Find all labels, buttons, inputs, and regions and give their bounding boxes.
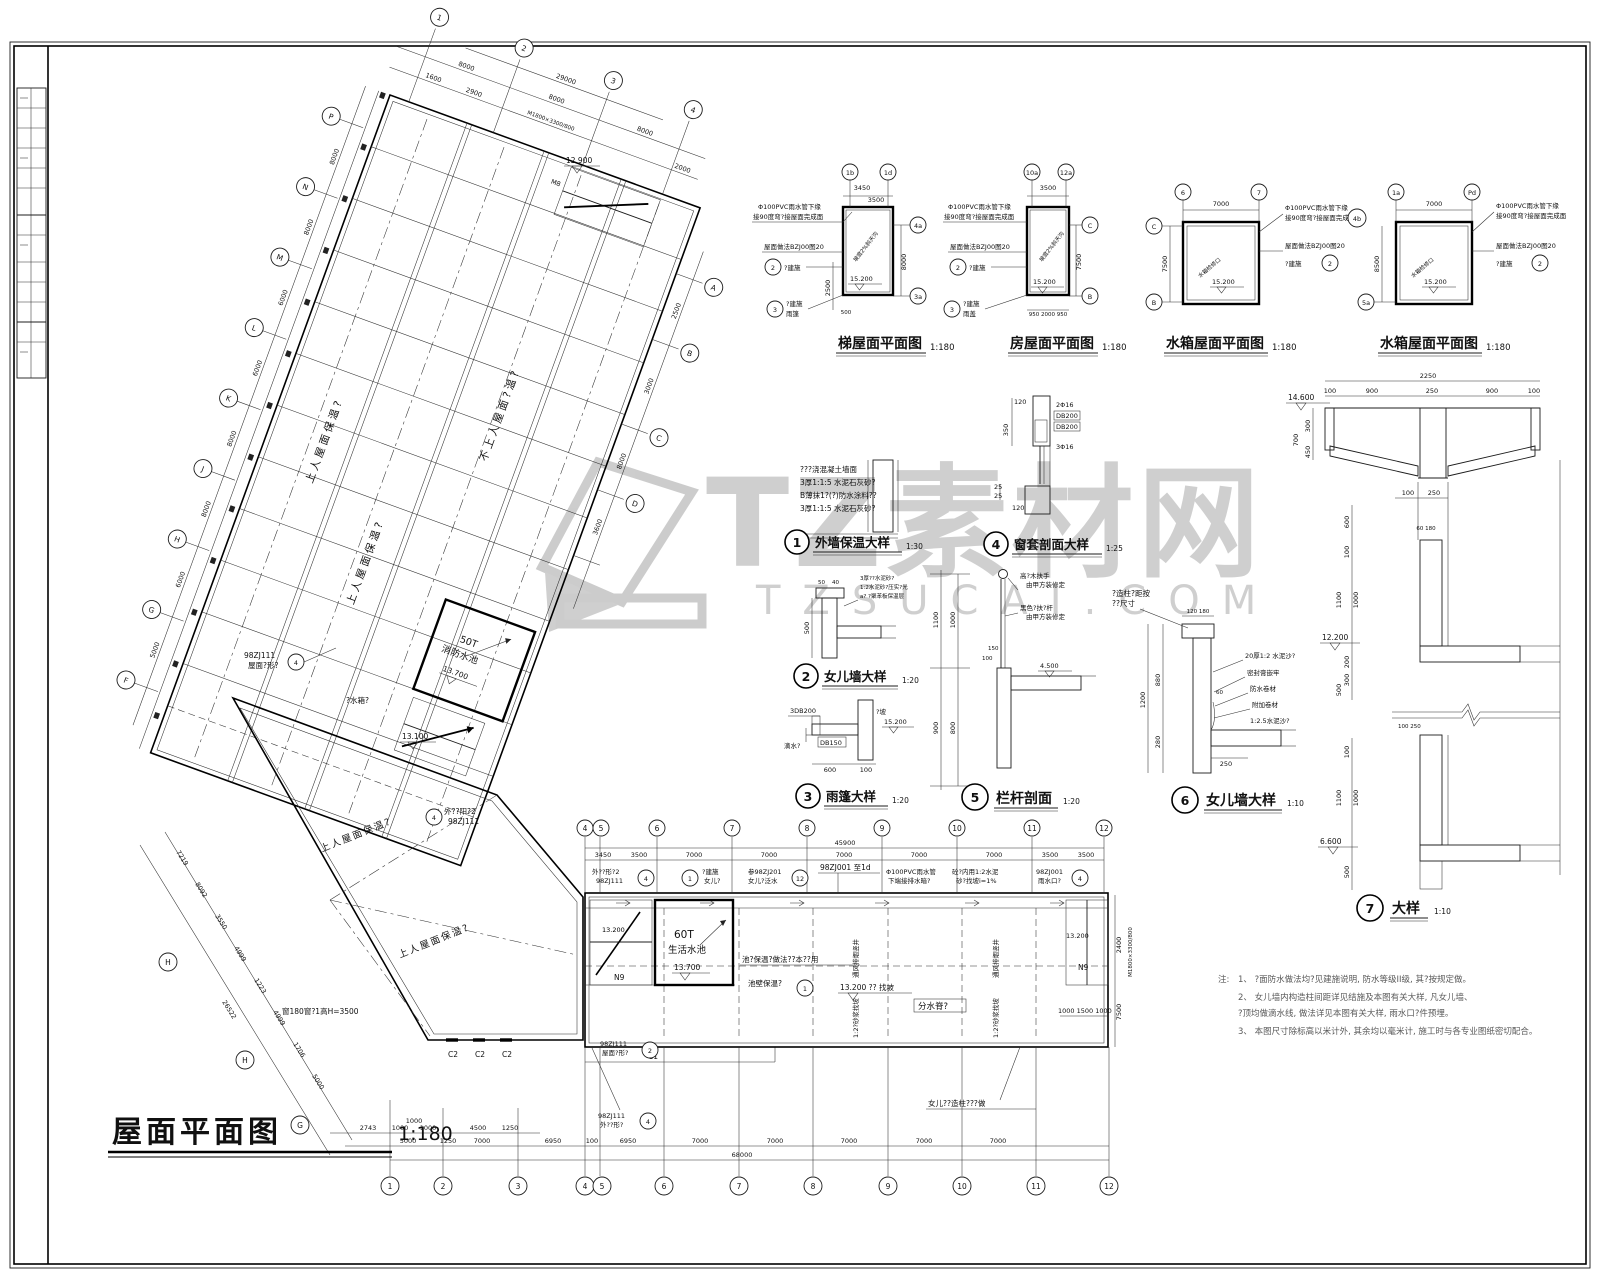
dim-text: 3600	[591, 518, 604, 536]
dim-text: 6000	[277, 289, 290, 307]
spec-text: 2Φ16	[1056, 401, 1074, 409]
notes-line: ?顶均做滴水线, 做法详见本图有关大样, 雨水口?件预埋。	[1238, 1008, 1453, 1019]
svg-text:3: 3	[773, 306, 777, 314]
level-text: 14.600	[1288, 393, 1314, 402]
grid-bubble: 1b	[846, 169, 854, 177]
spec-text: DB150	[820, 739, 842, 747]
dim-text: 3500	[1078, 851, 1095, 859]
dim-text: 1200	[1139, 692, 1147, 709]
spec-text: 高?木扶手	[1020, 571, 1050, 580]
plan-title: 水箱屋面平面图	[1166, 335, 1264, 352]
leader-text: Φ100PVC雨水管下缘	[1496, 201, 1559, 210]
level-text: 4.500	[1040, 662, 1059, 670]
dim-text: 1000	[949, 612, 957, 629]
callout-text: 砼?内用1:2水泥	[952, 867, 999, 876]
leader-text: 接90度弯?接屋面完成面	[753, 212, 824, 221]
dim-text: 7000	[686, 851, 703, 859]
leader-text: ?建施	[963, 299, 980, 308]
svg-text:4: 4	[294, 659, 298, 667]
detail-title: 雨篷大样	[826, 789, 877, 804]
dim-text: 68000	[732, 1151, 753, 1159]
plan-watertank-roof-1: 6 7 7000 C B 7500 水箱检修口 15.200 Φ100PVC雨水…	[1146, 184, 1366, 356]
grid-bubble: 11	[1027, 824, 1037, 833]
dim-text: 8000	[900, 254, 908, 271]
detail-title: 栏杆剖面	[996, 790, 1052, 807]
dim-text: 7500	[1075, 254, 1083, 271]
level-text: 15.200	[850, 275, 873, 283]
dim-text: 8000	[328, 148, 341, 166]
callout-text: 女儿??造柱???做	[928, 1098, 986, 1108]
dim-text: 7000	[474, 1137, 491, 1145]
stair-left: 13.200 N9	[590, 900, 652, 985]
dim-text: 100	[586, 1137, 598, 1145]
detail-scale: 1:10	[1287, 799, 1304, 808]
detail-3-canopy: 3DB200 DB150 滴水? ?坡 15.200 600 100 3 雨篷大…	[784, 700, 914, 809]
dim-text: 2900	[465, 86, 483, 99]
level-text: 13.200	[602, 926, 625, 934]
notes-line: 2、 女儿墙内构造柱间距详见结施及本图有关大样, 凡女儿墙、	[1238, 992, 1473, 1003]
slope-label: 水箱检修口	[1196, 256, 1222, 280]
angled-annotations: 12.900 13.100 98ZJ111 屋面?形? 4 ?水箱? 外??阳?…	[244, 156, 600, 826]
spec-text: a? ?聚苯板保温层	[860, 592, 904, 600]
svg-text:2: 2	[771, 264, 775, 272]
dim-text: 5000	[310, 1073, 326, 1091]
roof-area-label: 上人屋面保温?	[397, 921, 472, 961]
grid-bubble: 7	[730, 824, 735, 833]
detail-scale: 1:20	[892, 796, 909, 805]
dim-text: 120 180	[1187, 609, 1210, 615]
dim-text: 6950	[545, 1137, 562, 1145]
level-text: 15.200	[1033, 278, 1056, 286]
callout-text: 外??形?2	[592, 867, 620, 876]
drawing-canvas: TZ素材网 TZSUCAI.COM 50T 消防水池 13.700 M8 上人屋…	[0, 0, 1600, 1280]
dim-text: 6000	[174, 570, 187, 588]
roof-area-label: 上人屋面保温?	[344, 518, 387, 607]
page-title-scale: 1:180	[398, 1123, 453, 1145]
spec-text: 防水卷材	[1250, 684, 1277, 693]
grid-bubble: 6	[1181, 189, 1185, 197]
callout-text: Φ100PVC雨水管	[886, 867, 936, 876]
dim-text: 100	[1528, 387, 1540, 395]
grid-bubble: 5	[600, 1182, 605, 1191]
leader-text: ?建施	[786, 299, 803, 308]
watermark-title: TZ素材网	[706, 453, 1264, 595]
detail-title: 外墙保温大样	[814, 535, 891, 550]
dim-text: 100	[1343, 546, 1351, 558]
dim-text: 700	[1292, 434, 1300, 446]
spec-text: 1:2水泥砂?压实?光	[860, 583, 908, 591]
dim-text: 120	[1012, 504, 1024, 512]
svg-text:12: 12	[796, 875, 804, 883]
dim-text: 7000	[841, 1137, 858, 1145]
dim-text: 5000	[148, 641, 161, 659]
dim-text: 1100	[1335, 592, 1343, 609]
callout-text: 池?保温?做法??本??用	[742, 954, 818, 964]
grid-bubble: 8	[805, 824, 810, 833]
callout-text: 98ZJ111	[448, 817, 479, 826]
dim-text: 3450	[854, 184, 871, 192]
callout-text: 女儿?泛水	[748, 876, 778, 885]
spec-text: 3厚1:1:5 水泥石灰砂?	[800, 503, 876, 513]
slope-label: 坡度2%斜天沟	[851, 229, 880, 263]
leader-text: 屋面做法BZJ00图20	[764, 242, 824, 251]
spec-text: ?造柱?距按	[1112, 588, 1150, 598]
grid-bubble: 1a	[1392, 189, 1400, 197]
dim-text: 100	[1343, 746, 1351, 758]
dim-text: 150	[988, 646, 999, 652]
dim-text: 250	[1220, 760, 1232, 768]
dim-text: 7500	[1161, 256, 1169, 273]
dim-text: 8000	[547, 93, 565, 106]
callout-text: 98ZJ111	[596, 877, 623, 885]
dim-text: 1706	[291, 1041, 307, 1059]
detail-title: 女儿墙大样	[1206, 792, 1276, 809]
dim-text: 8000	[200, 500, 213, 518]
plan-title: 房屋面平面图	[1010, 335, 1094, 352]
plan-scale: 1:180	[1102, 343, 1127, 353]
dim-text: 950 2000 950	[1029, 312, 1068, 318]
window-mark: C2	[502, 1050, 512, 1059]
dim-text: 300	[1343, 674, 1351, 686]
dim-text: 7000	[692, 1137, 709, 1145]
grid-bubble: Pd	[1468, 189, 1476, 197]
callout-text: 98ZJ111	[598, 1112, 625, 1120]
slope-label: 1:2?砂浆找坡	[991, 998, 1000, 1038]
dim-text: 300	[1304, 420, 1312, 432]
dim-text: 1000	[1352, 592, 1360, 609]
grid-bubble: 7	[1257, 189, 1261, 197]
callout-text: 98ZJ001	[1036, 868, 1063, 876]
spec-text: 3Φ16	[1056, 443, 1074, 451]
dim-text: 250	[1426, 387, 1438, 395]
shaft-label: 通风排烟竖井	[991, 939, 1000, 979]
spec-text: 附加卷材	[1252, 700, 1279, 709]
dim-text: 100	[860, 766, 872, 774]
dim-text: 2500	[670, 302, 683, 320]
level-text: 13.200	[1066, 932, 1089, 940]
level-text: 15.200	[1212, 278, 1235, 286]
dim-text: 880	[1154, 674, 1162, 686]
grid-bubble: 6	[662, 1182, 667, 1191]
grid-bubble: 5a	[1362, 299, 1370, 307]
roof-area-label: 上人屋面保温?	[303, 396, 346, 485]
spec-text: ???浇混凝土墙面	[800, 464, 857, 474]
dim-text: 25	[994, 483, 1002, 491]
roof-area-label: 不上人屋面?温?	[478, 367, 523, 463]
detail-title: 女儿墙大样	[824, 669, 887, 684]
slope-label: 水箱检修口	[1409, 256, 1435, 280]
callout-text: ?建施	[702, 867, 719, 876]
callout-text: ?水箱?	[346, 695, 369, 705]
detail-number: 1	[793, 535, 802, 550]
leader-text: Φ100PVC雨水管下缘	[948, 202, 1011, 211]
dim-text: 60	[1216, 690, 1223, 696]
leader-text: ?建施	[1496, 259, 1513, 268]
title-block-strip	[17, 88, 46, 378]
level-text: 12.200	[1322, 633, 1348, 642]
level-text: 13.200 ?? 找坡	[840, 982, 894, 992]
detail-title: 窗套剖面大样	[1014, 537, 1090, 552]
spec-text: DB200	[1056, 423, 1078, 431]
dim-text: 120	[1014, 398, 1026, 406]
grid-bubble: 4a	[914, 222, 922, 230]
leader-text: 屋面做法BZJ00图20	[1496, 241, 1556, 250]
dim-text: 8000	[302, 218, 315, 236]
grid-bubble: 5	[599, 824, 604, 833]
grid-bubble: 1	[388, 1182, 393, 1191]
plan-scale: 1:180	[1486, 343, 1511, 353]
pool-cap: 50T	[458, 634, 479, 651]
callout-text: 外??形?	[600, 1120, 623, 1129]
dim-text: 3450	[595, 851, 612, 859]
dim-text: 25	[994, 492, 1002, 500]
svg-text:2: 2	[648, 1047, 652, 1055]
grid-bubble: 2	[441, 1182, 446, 1191]
dim-text: 7000	[911, 851, 928, 859]
dim-text: 3500	[1040, 184, 1057, 192]
grid-bubble: 7	[737, 1182, 742, 1191]
stair-mark: N9	[614, 973, 625, 982]
detail-number: 4	[992, 537, 1001, 552]
detail-title: 大样	[1392, 900, 1420, 917]
dim-text: 450	[1304, 446, 1312, 458]
slope-label: 坡度2%斜天沟	[1037, 229, 1066, 263]
leader-text: ?建施	[1285, 259, 1302, 268]
window-mark: C2	[475, 1050, 485, 1059]
ridge-label: 分水脊?	[918, 1001, 948, 1012]
dim-text: 7000	[836, 851, 853, 859]
shaft-label: 通风排烟竖井	[851, 939, 860, 979]
svg-text:1: 1	[803, 985, 807, 993]
pool-50t: 50T 消防水池 13.700	[413, 600, 535, 722]
grid-bubble: 10	[952, 824, 962, 833]
plan-watertank-roof-2: 1a Pd 7000 5a 8500 水箱检修口 15.200 Φ100PVC雨…	[1358, 184, 1567, 356]
dim-text: 100	[982, 656, 993, 662]
level-text: 13.100	[402, 732, 428, 741]
dim-text: 500	[1335, 684, 1343, 696]
dim-text: 7000	[986, 851, 1003, 859]
spec-text: 20厚1:2 水泥沙?	[1245, 651, 1295, 660]
leader-text: 雨盖	[963, 309, 977, 318]
tank-60t: 60T 生活水池 13.700	[655, 900, 733, 985]
dim-text: 7000	[1426, 200, 1443, 208]
svg-text:2: 2	[1328, 260, 1332, 268]
detail-number: 3	[804, 789, 813, 804]
leader-text: 屋面做法BZJ00图20	[950, 242, 1010, 251]
grid-bubble: C	[1152, 223, 1157, 231]
dim-text: 250	[1428, 489, 1440, 497]
dim-text: 4999	[232, 945, 248, 963]
cad-sheet: TZ素材网 TZSUCAI.COM 50T 消防水池 13.700 M8 上人屋…	[0, 0, 1600, 1280]
grid-bubble: 12a	[1060, 169, 1072, 177]
leader-text: 屋面做法BZJ00图20	[1285, 241, 1345, 250]
callout-text: 屋面?形?	[248, 661, 278, 670]
leader-text: 接90度弯?接屋面完成面	[1285, 213, 1356, 222]
dim-text: 1000	[1352, 790, 1360, 807]
dim-text: 60 180	[1416, 526, 1436, 532]
grid-bubble: 4	[583, 824, 588, 833]
grid-bubble: 4	[583, 1182, 588, 1191]
notes-line: 3、 本图尺寸除标高以米计外, 其余均以毫米计, 施工时与各专业图纸密切配合。	[1238, 1026, 1537, 1037]
plan-stair-roof: 1b 1d 3450 3500 4a 3a 8000 2500 500 坡度2%…	[752, 164, 955, 356]
dim-text: 1100	[1335, 790, 1343, 807]
grid-bubble: H	[165, 958, 171, 967]
dim-text: 7000	[916, 1137, 933, 1145]
leader-text: Φ100PVC雨水管下缘	[1285, 203, 1348, 212]
dim-text: 200	[1343, 656, 1351, 668]
spec-text: 由甲方装修定	[1026, 580, 1066, 589]
spec-text: 3DB200	[790, 707, 816, 715]
callout-text: 参98ZJ201	[748, 867, 782, 876]
dim-text: 2250	[1420, 372, 1437, 380]
callout-text: 砂?找坡i=1%	[956, 876, 997, 885]
dim-text: 600	[824, 766, 836, 774]
leader-text: ?建施	[969, 263, 986, 272]
spec-text: ?坡	[876, 707, 886, 716]
leader-text: 接90度弯?接屋面完成面	[944, 212, 1015, 221]
dim-text: 6950	[620, 1137, 637, 1145]
dim-text: 3500	[1042, 851, 1059, 859]
angled-roof-block: 50T 消防水池 13.700 M8 上人屋面保温? 上人屋面保温? 不上人屋面…	[97, 0, 780, 882]
dim-text: 500	[1343, 866, 1351, 878]
callout-text: 女儿?	[704, 876, 720, 885]
spec-text: 3厚1:1:5 水泥石灰砂?	[800, 477, 876, 487]
plan-title: 水箱屋面平面图	[1380, 335, 1478, 352]
plan-scale: 1:180	[1272, 343, 1297, 353]
dim-text: 7000	[767, 1137, 784, 1145]
dim-text: 8000	[457, 60, 475, 73]
dim-text: 1250	[502, 1124, 519, 1132]
grid-bubble: 11	[1031, 1182, 1041, 1191]
grid-bubble: 10	[957, 1182, 967, 1191]
dim-text: 8000	[225, 430, 238, 448]
dim-text: 7219	[174, 849, 190, 867]
detail-scale: 1:20	[902, 676, 919, 685]
grid-bubble: 8	[811, 1182, 816, 1191]
dim-text: 2000	[673, 162, 691, 175]
grid-bubble: 10a	[1026, 169, 1038, 177]
dim-text: 7000	[1213, 200, 1230, 208]
detail-number: 6	[1181, 793, 1190, 808]
svg-text:2: 2	[956, 264, 960, 272]
callout-text: 98ZJ111	[244, 651, 275, 660]
dim-text: 100 250	[1398, 724, 1421, 730]
callout-text: 98ZJ111	[600, 1040, 627, 1048]
dim-text: 1600	[424, 71, 442, 84]
dim-text: 2400	[1115, 937, 1123, 954]
grid-bubble: B	[1152, 299, 1156, 307]
dim-text: 50	[818, 580, 825, 586]
spec-text: DB200	[1056, 412, 1078, 420]
dim-text: 2500	[824, 280, 832, 297]
grid-bubble: 1d	[884, 169, 892, 177]
stair-top: M8	[541, 163, 661, 247]
detail-scale: 1:25	[1106, 544, 1123, 553]
dim-text: 600	[1343, 516, 1351, 528]
dim-text: 3000	[642, 377, 655, 395]
dim-text: 3500	[868, 196, 885, 204]
grid-bubble: 6	[655, 824, 660, 833]
callout-text: 屋面?形?	[602, 1049, 628, 1057]
grid-bubble: 3a	[914, 293, 922, 301]
detail-scale: 1:20	[1063, 797, 1080, 806]
detail-number: 5	[971, 790, 980, 805]
tank-name: 生活水池	[668, 944, 707, 956]
grid-bubble: 12	[1099, 824, 1109, 833]
plan-room-roof: 10a 12a 3500 C B 7500 950 2000 950 坡度2%斜…	[943, 164, 1127, 356]
detail-scale: 1:30	[906, 542, 923, 551]
dim-text: 900	[1486, 387, 1498, 395]
callout-text: 雨水口?	[1038, 876, 1061, 885]
dim-text: 45900	[835, 839, 856, 847]
dim-text: 100	[1402, 489, 1414, 497]
leader-text: Φ100PVC雨水管下缘	[758, 202, 821, 211]
svg-text:2: 2	[1538, 260, 1542, 268]
window-note: 窗180窗?1高H=3500	[282, 1006, 359, 1016]
plan-title: 梯屋面平面图	[838, 335, 922, 352]
detail-number: 7	[1366, 901, 1375, 916]
page-title: 屋面平面图	[112, 1115, 282, 1150]
plan-scale: 1:180	[930, 343, 955, 353]
spec-text: ??尺寸	[1112, 598, 1135, 608]
dim-text: 4500	[470, 1124, 487, 1132]
svg-text:1: 1	[688, 875, 692, 883]
dim-text: 3550	[213, 913, 229, 931]
svg-text:4: 4	[432, 814, 436, 822]
level-text: 15.200	[884, 718, 907, 726]
leader-text: ?建施	[784, 263, 801, 272]
dim-text: 1223	[252, 977, 268, 995]
dim-text: 800	[949, 722, 957, 734]
grid-bubble: 12	[1104, 1182, 1114, 1191]
general-notes: 注: 1、 ?面防水做法均?见建施说明, 防水等级II级, 其?按规定做。 2、…	[1218, 974, 1537, 1037]
dim-text: M1800×3300/800	[526, 110, 575, 133]
tank-level: 13.700	[674, 963, 700, 972]
callout-text: 下端接排水暗?	[888, 876, 930, 885]
dim-text: 8000	[636, 125, 654, 138]
dim-text: 7000	[990, 1137, 1007, 1145]
dim-text: 6000	[251, 359, 264, 377]
stair-mark: N9	[1078, 963, 1089, 972]
grid-bubble: 3	[516, 1182, 521, 1191]
callout-text: 98ZJ001 至1d	[820, 863, 871, 872]
svg-text:4: 4	[644, 875, 648, 883]
dim-text: 1000 1500 1000	[1058, 1007, 1112, 1015]
grid-bubble: 9	[880, 824, 885, 833]
grid-bubble: B	[1088, 293, 1092, 301]
dim-text: 900	[1366, 387, 1378, 395]
dim-text: 8092	[193, 881, 209, 899]
leader-text: 雨篷	[786, 309, 800, 318]
dim-text: 280	[1154, 736, 1162, 748]
spec-text: 密封膏嵌牢	[1247, 668, 1280, 677]
slope-label: 1:2?砂浆找坡	[851, 998, 860, 1038]
spec-text: 1:2.5水泥沙?	[1250, 716, 1290, 725]
level-text: 12.900	[566, 156, 592, 165]
svg-text:4: 4	[646, 1118, 650, 1126]
dim-text: 100	[1324, 387, 1336, 395]
detail-scale: 1:10	[1434, 907, 1451, 916]
dim-text: 7000	[761, 851, 778, 859]
spec-text: 3厚??水泥砂?	[860, 574, 894, 582]
window-mark: C2	[448, 1050, 458, 1059]
grid-bubble: 9	[886, 1182, 891, 1191]
spec-text: B薄抹1?(?)防水涂料??	[800, 490, 877, 500]
notes-head: 注:	[1218, 974, 1229, 985]
leader-text: 接90度弯?接屋面完成面	[1496, 211, 1567, 220]
main-plan-title: 屋面平面图 1:180	[108, 1115, 453, 1157]
level-text: 6.600	[1320, 837, 1342, 846]
